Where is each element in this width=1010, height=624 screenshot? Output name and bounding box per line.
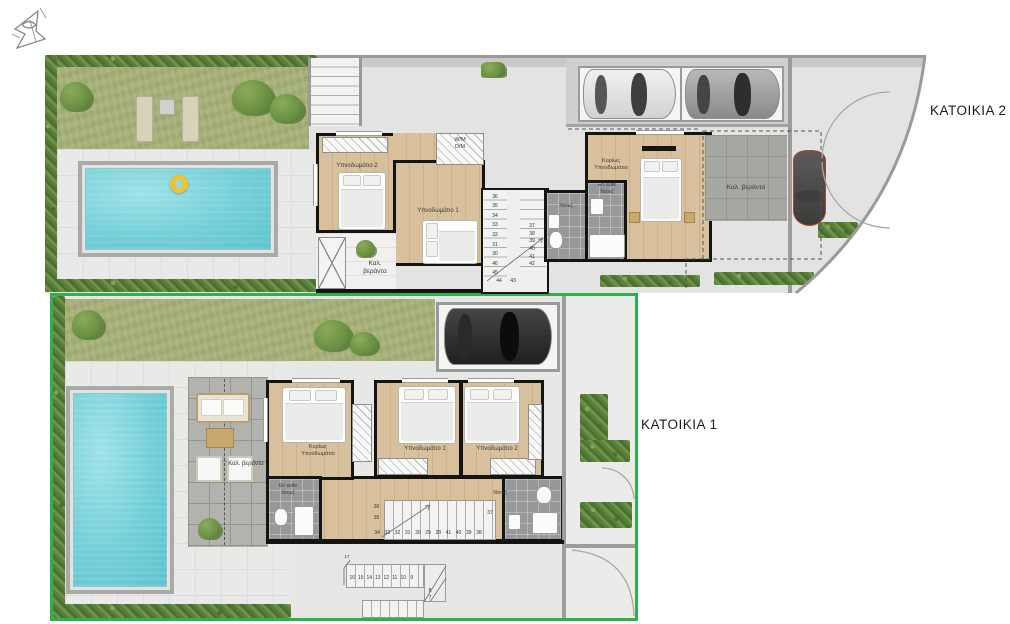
bedside-table [684, 212, 695, 223]
planter-bush [481, 62, 505, 78]
planter-hedge [600, 275, 700, 287]
pool1-water [73, 393, 167, 587]
plan1-closet [378, 458, 428, 475]
plot1-gate-wall [566, 544, 635, 548]
stair-step-number: 43 [506, 278, 520, 284]
bed-double [338, 172, 386, 230]
stair-step-number: 36 [492, 192, 498, 202]
sink [590, 198, 604, 215]
skylight-hatch [318, 237, 346, 289]
garden-bush [72, 310, 104, 340]
sink [508, 514, 521, 530]
car-rear-window [697, 75, 709, 114]
stair-step-number: 32 [392, 530, 402, 536]
car-dark-red-trim [793, 150, 826, 226]
sink [548, 214, 560, 229]
stair-step-number: 46 [492, 259, 498, 269]
plot1-hedge-bottom [53, 604, 291, 618]
garden-bush [60, 82, 92, 112]
planter-hedge [580, 394, 608, 444]
car-white [583, 69, 676, 119]
plan1-closet [490, 458, 536, 475]
stair-step-number: 37 [529, 222, 535, 230]
window [402, 378, 448, 383]
stair-step-number: 42 [529, 260, 535, 268]
planter-hedge [580, 502, 632, 528]
stair-step-number: 41 [443, 530, 453, 536]
bed-double [640, 158, 682, 222]
window [468, 378, 514, 383]
plot1-side-wall [562, 296, 566, 618]
plot2-side-wall [788, 57, 792, 293]
stair-step-number: 16 [348, 575, 357, 581]
compass-north-icon [12, 8, 46, 48]
plot1-hedge-left [53, 296, 65, 618]
stair-step-number: 34 [492, 211, 498, 221]
shower-tray [532, 512, 558, 534]
plot2-exterior-stairs [308, 58, 362, 126]
plan2-wm-closet [436, 133, 484, 165]
car-windshield [631, 73, 647, 116]
stair-step-number: 7 [429, 595, 432, 602]
plan2-wardrobe [322, 137, 388, 153]
stair-step-number: 38 [529, 230, 535, 238]
stair-step-number: 38 [474, 530, 484, 536]
stair-step-number: 14 [365, 575, 374, 581]
stair-step-number: 29 [423, 530, 433, 536]
stair-step-number: 35 [374, 512, 380, 523]
stair-numbers-right: 373839404142 [521, 222, 543, 268]
site-plan-canvas: 363534333231304645 373839404142 4443 [0, 0, 1010, 624]
car-windshield [734, 73, 750, 116]
stair-step-number: 44 [492, 278, 506, 284]
plot2-hedge-left [45, 55, 57, 292]
stair-numbers-bottom: 4443 [492, 276, 520, 286]
potted-plant [198, 518, 221, 540]
stair-step-number: 31 [403, 530, 413, 536]
stair-step-number: 39 [529, 237, 535, 245]
planter-hedge [714, 272, 814, 285]
bed-double [398, 386, 456, 444]
window [292, 378, 340, 383]
potted-plant [356, 240, 375, 258]
shower-tray [294, 506, 314, 536]
armchair [196, 456, 222, 482]
armchair [227, 456, 253, 482]
bedside-table [629, 212, 640, 223]
shower-tray [589, 234, 625, 258]
coffee-table [206, 428, 234, 448]
plot2-hedge-top [45, 55, 317, 67]
plan1-bottom-wall [266, 540, 564, 544]
bed-headboard [642, 146, 676, 151]
bed-double [422, 220, 478, 264]
garden-side-table [159, 99, 175, 115]
bed-double [282, 387, 346, 443]
sun-lounger [136, 96, 153, 142]
plot1-lawn [65, 299, 435, 361]
stair-step-number: 9 [408, 575, 417, 581]
plan1-wardrobe [352, 404, 372, 462]
stair-step-number: 13 [374, 575, 383, 581]
stair-step-number: 15 [357, 575, 366, 581]
stair-step-number: 31 [492, 240, 498, 250]
stair-step-number: 40 [454, 530, 464, 536]
stair-numbers-run: 3433323130292841403938 [372, 528, 484, 538]
stair-step-number: 34 [372, 530, 382, 536]
residence1-title: ΚΑΤΟΙΚΙΑ 1 [641, 416, 733, 434]
car-windshield [500, 312, 518, 361]
stair-step-number: 12 [382, 575, 391, 581]
stair-step-number: 30 [492, 249, 498, 259]
garden-tree [314, 320, 352, 352]
parking-stall-divider [680, 66, 682, 122]
plan2-veranda-right [705, 135, 787, 221]
stair-step-number: 30 [413, 530, 423, 536]
stair-step-number: 40 [529, 245, 535, 253]
stair-step-number: 33 [492, 221, 498, 231]
planter-hedge [580, 440, 630, 462]
stair-numbers-left: 363534333231304645 [484, 192, 506, 278]
window [636, 130, 684, 135]
car-rear-window [458, 314, 472, 358]
window [263, 398, 268, 442]
window [336, 131, 382, 136]
toilet [274, 508, 288, 526]
outdoor-sofa [196, 393, 250, 423]
pool-float-ring [170, 175, 188, 193]
stair-step-number: 33 [382, 530, 392, 536]
stair-numbers-ext-run: 161514131211109 [348, 573, 416, 582]
stair-numbers-ext-side: 87 [424, 588, 436, 601]
garden-tree [350, 332, 378, 356]
car-rear-window [595, 75, 607, 114]
toilet [549, 231, 563, 249]
plan2-bottom-wall [316, 289, 483, 293]
bed-double [464, 386, 520, 444]
stair-numbers-left: 3635 [370, 501, 383, 523]
plan1-exterior-stairs-lower [362, 600, 424, 618]
stair-step-number: 36 [374, 501, 380, 512]
car-silver [685, 69, 780, 119]
plot2-hedge-bottom [45, 279, 317, 292]
stair-step-number: 41 [529, 253, 535, 261]
stair-step-number: 35 [492, 202, 498, 212]
car-black [444, 308, 552, 365]
stair-step-number: 39 [464, 530, 474, 536]
stair-step-number: 10 [399, 575, 408, 581]
toilet [536, 486, 552, 504]
sun-lounger [182, 96, 199, 142]
stair-step-number: 11 [391, 575, 400, 581]
window [313, 164, 318, 206]
stair-step-number: 32 [492, 230, 498, 240]
plan1-wardrobe [528, 404, 542, 460]
garden-tree [232, 80, 274, 116]
residence2-title: ΚΑΤΟΙΚΙΑ 2 [930, 102, 1010, 120]
stair-step-number: 28 [433, 530, 443, 536]
garden-tree [270, 94, 304, 124]
car-rear-window [797, 160, 823, 170]
